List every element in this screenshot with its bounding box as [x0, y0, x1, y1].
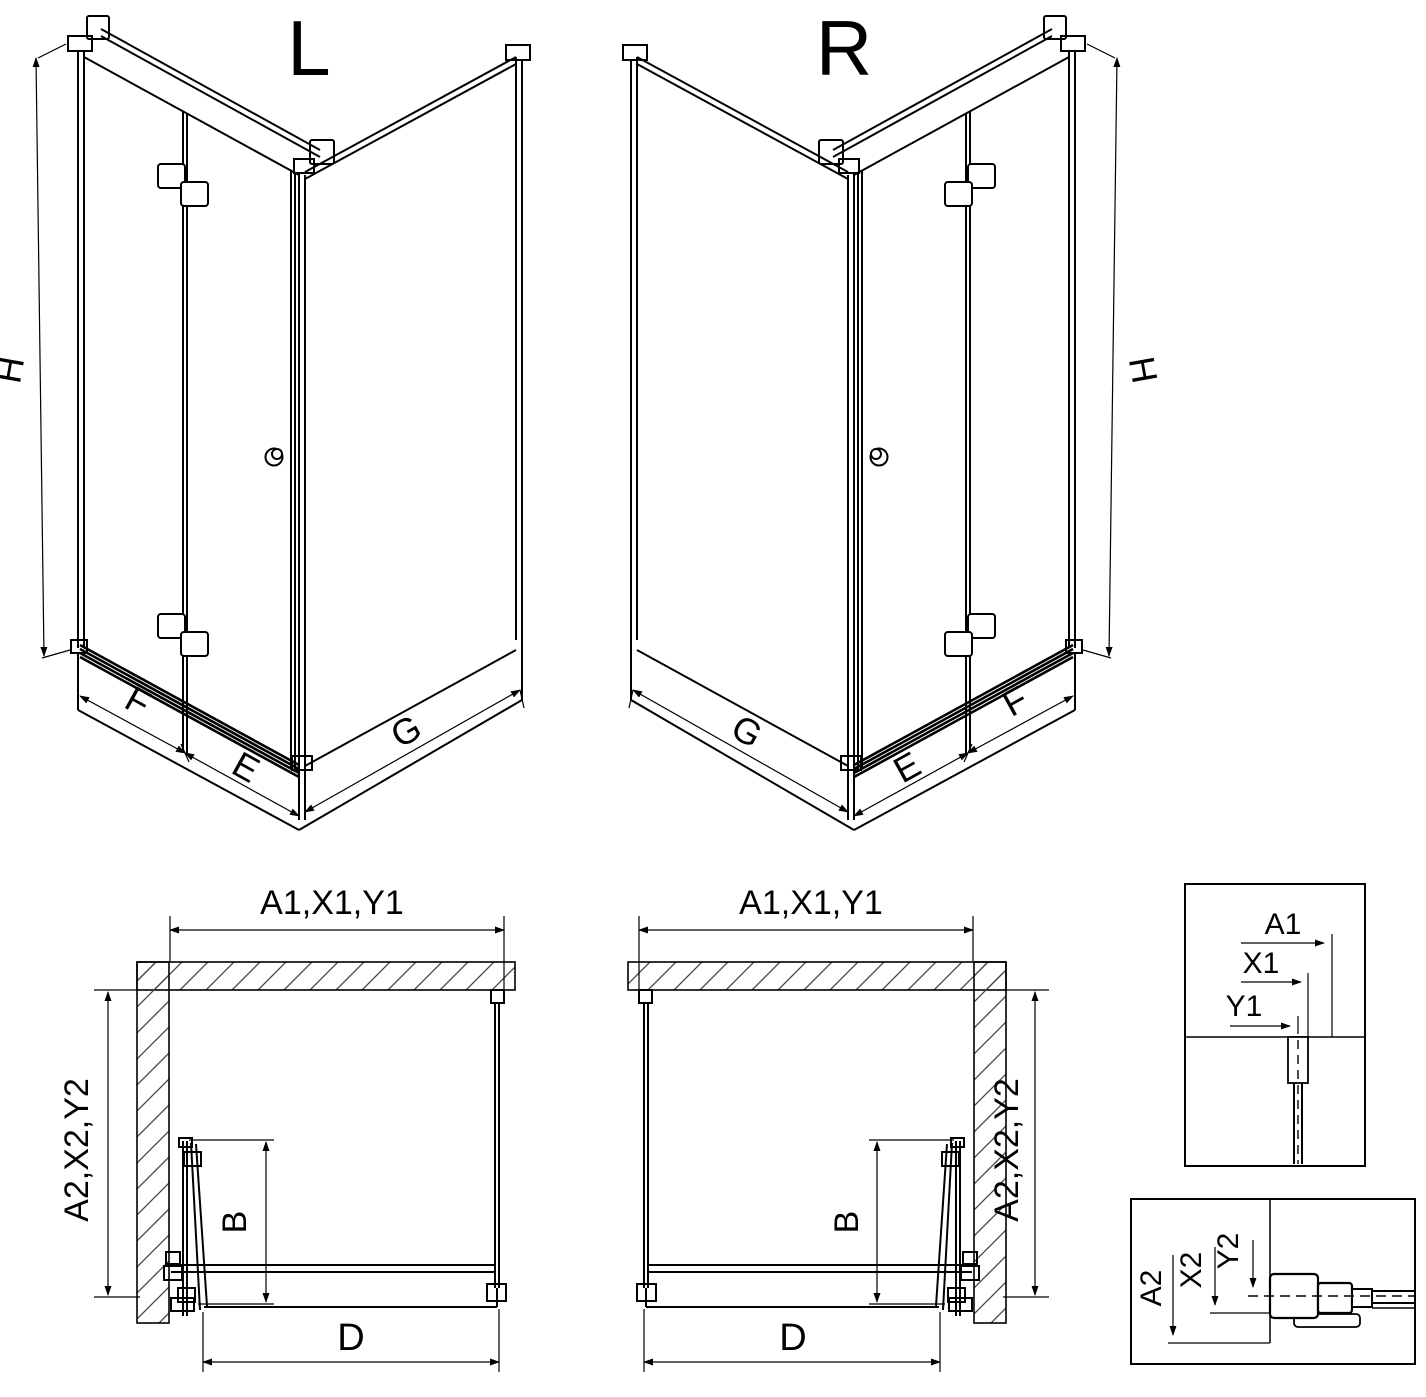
detail-label-A1: A1 [1265, 908, 1302, 941]
dim-label-F: F [119, 678, 158, 725]
view-label-L: L [287, 4, 330, 92]
detail-label-A2: A2 [1135, 1270, 1168, 1307]
dim-label-D: D [779, 1317, 806, 1359]
view-label-R: R [816, 4, 872, 92]
detail-box-depth: A2 X2 Y2 [1131, 1199, 1415, 1364]
dim-label-A2X2Y2: A2,X2,Y2 [988, 1078, 1026, 1222]
dim-label-G: G [384, 706, 428, 755]
dim-label-A1X1Y1: A1,X1,Y1 [260, 884, 404, 922]
dim-label-G: G [725, 706, 769, 755]
dim-label-F: F [995, 678, 1034, 725]
dim-label-B: B [828, 1211, 866, 1234]
top-wall-hatched [628, 962, 1006, 990]
detail-label-Y2: Y2 [1212, 1233, 1245, 1270]
shower-enclosure-diagram: L H F E G R H F E G A1,X1,Y1 A2,X2,Y2 B … [0, 0, 1426, 1397]
dim-label-A1X1Y1: A1,X1,Y1 [739, 884, 883, 922]
top-wall-hatched [137, 962, 515, 990]
dim-label-B: B [216, 1211, 254, 1234]
plan-view-right: A1,X1,Y1 A2,X2,Y2 B D [628, 884, 1049, 1372]
dim-label-H: H [0, 353, 32, 386]
dim-label-E: E [886, 743, 927, 791]
plan-view-left: A1,X1,Y1 A2,X2,Y2 B D [58, 884, 515, 1372]
detail-label-X2: X2 [1175, 1252, 1208, 1289]
dim-label-D: D [337, 1317, 364, 1359]
detail-label-X1: X1 [1243, 947, 1280, 980]
dim-label-H: H [1121, 353, 1166, 386]
technical-drawing-page: L H F E G R H F E G A1,X1,Y1 A2,X2,Y2 B … [0, 0, 1426, 1397]
iso-view-right: R H F E G [623, 4, 1166, 830]
dim-label-A2X2Y2: A2,X2,Y2 [58, 1078, 96, 1222]
detail-box-width: A1 X1 Y1 [1185, 884, 1365, 1166]
wall-profile-section [1248, 1274, 1414, 1327]
iso-view-left: L H F E G [0, 4, 530, 830]
dim-label-E: E [226, 743, 267, 791]
detail-label-Y1: Y1 [1226, 990, 1263, 1023]
